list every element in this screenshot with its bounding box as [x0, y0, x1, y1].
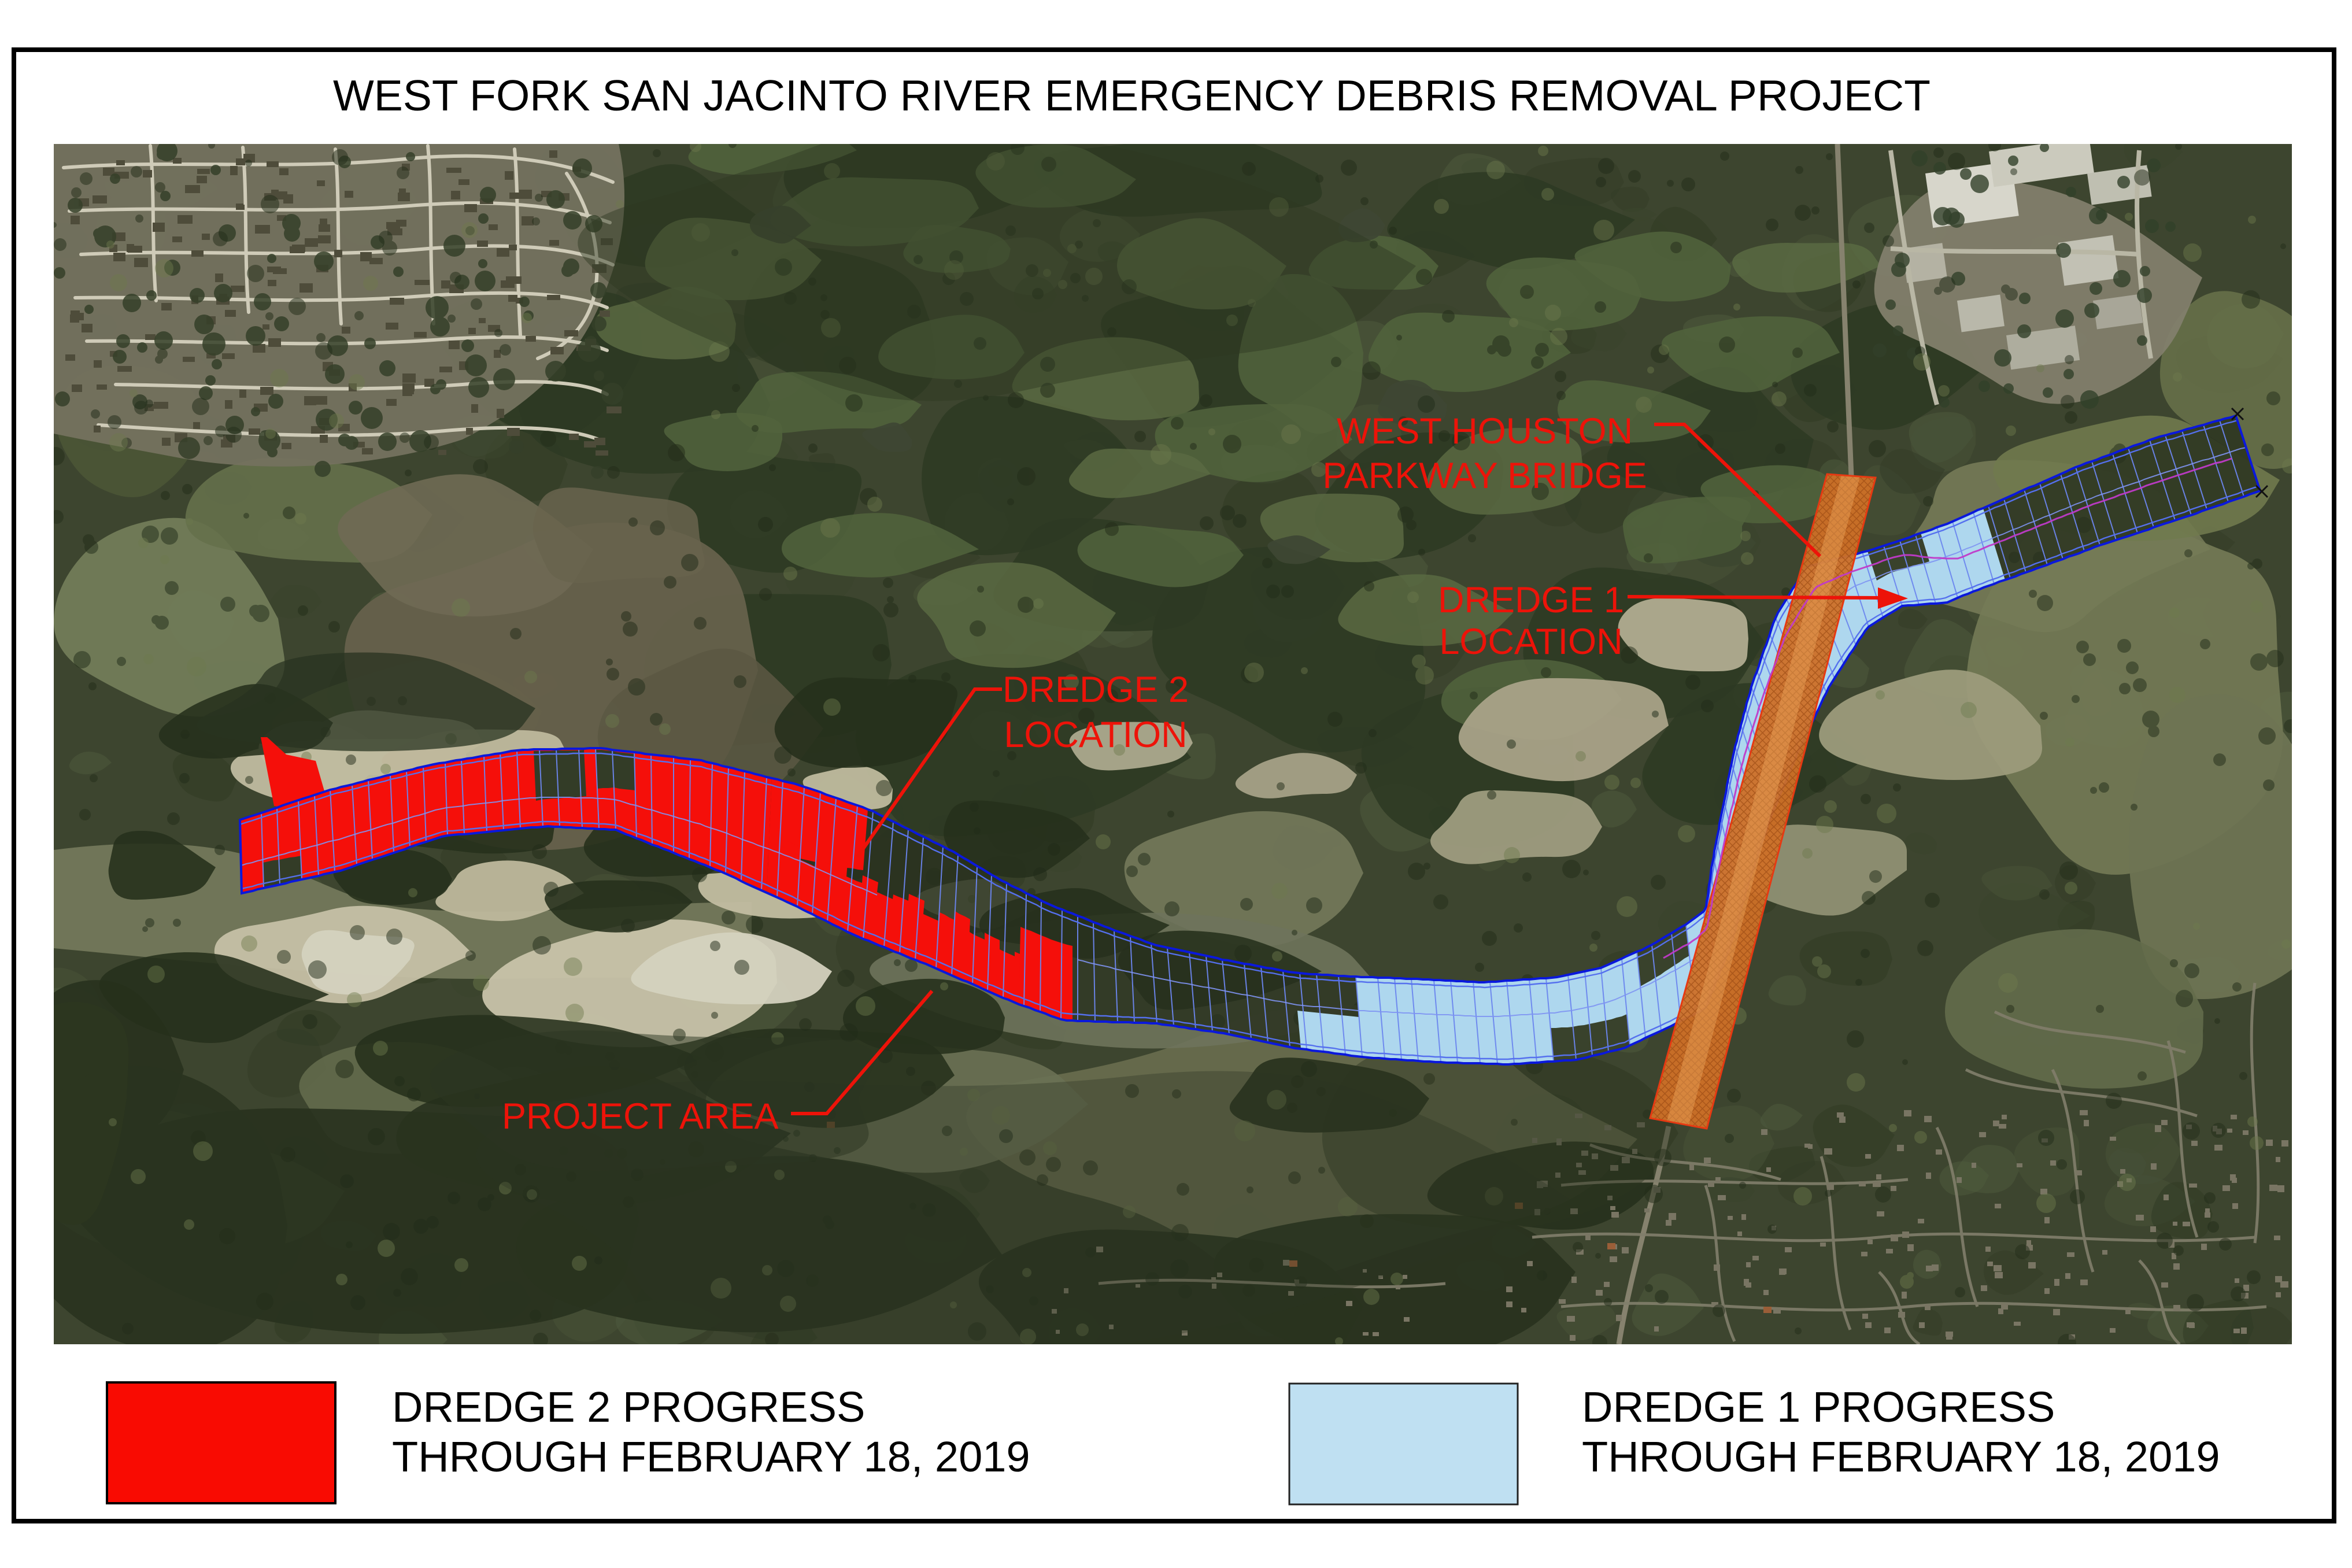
svg-text:DREDGE 1 PROGRESS: DREDGE 1 PROGRESS: [1582, 1383, 2055, 1431]
svg-text:DREDGE 2: DREDGE 2: [1003, 670, 1189, 710]
svg-text:THROUGH FEBRUARY 18, 2019: THROUGH FEBRUARY 18, 2019: [392, 1433, 1030, 1481]
svg-text:PARKWAY BRIDGE: PARKWAY BRIDGE: [1322, 456, 1647, 496]
svg-text:DREDGE 1: DREDGE 1: [1438, 580, 1624, 620]
svg-text:DREDGE 2 PROGRESS: DREDGE 2 PROGRESS: [392, 1383, 865, 1431]
svg-text:WEST HOUSTON: WEST HOUSTON: [1337, 411, 1633, 452]
svg-text:PROJECT AREA: PROJECT AREA: [502, 1096, 778, 1137]
svg-text:LOCATION: LOCATION: [1004, 715, 1187, 755]
svg-text:LOCATION: LOCATION: [1439, 622, 1622, 662]
svg-text:WEST FORK SAN JACINTO RIVER EM: WEST FORK SAN JACINTO RIVER EMERGENCY DE…: [333, 71, 1931, 120]
svg-text:THROUGH FEBRUARY 18, 2019: THROUGH FEBRUARY 18, 2019: [1582, 1433, 2220, 1481]
